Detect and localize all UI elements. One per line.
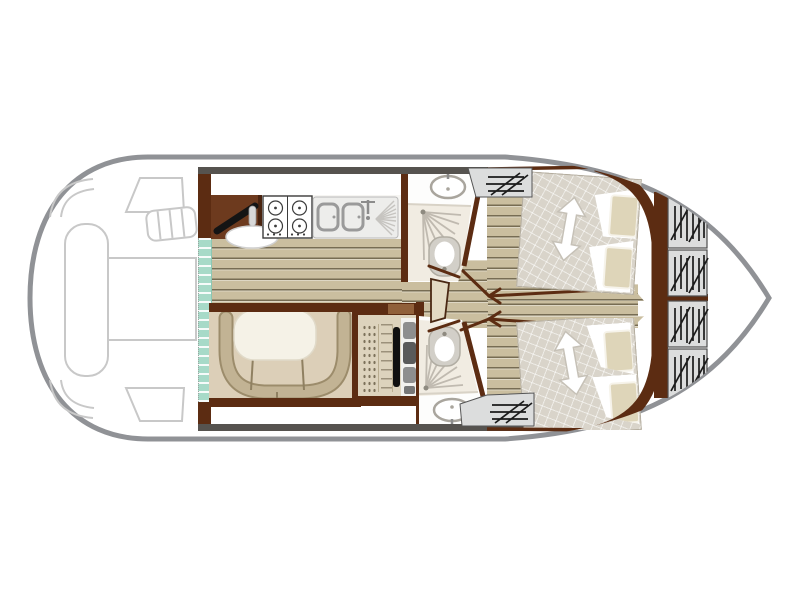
- galley-counter: [262, 195, 405, 239]
- hatch-glyph-icon: [671, 355, 708, 393]
- helm-seat[interactable]: [403, 342, 416, 364]
- galley-cabinet: [211, 195, 262, 239]
- pillow: [586, 238, 634, 293]
- corner-seat-bottom-icon: [50, 380, 94, 418]
- sink-faucet-icon: [361, 200, 375, 214]
- helm-wall-bottom: [356, 396, 420, 406]
- deck-seat-bottom-outline: [126, 388, 184, 421]
- locker-hatch[interactable]: [668, 250, 707, 296]
- dinette-wall-top: [209, 303, 360, 312]
- cabinet-handle: [249, 206, 256, 226]
- dinette-wall-bottom: [209, 398, 360, 407]
- helm-step-treads-2: [381, 324, 393, 392]
- pillow: [592, 374, 639, 427]
- deck-seat-top-outline: [126, 178, 184, 212]
- bathroom-bottom-wall-right: [464, 322, 483, 396]
- locker-hatch[interactable]: [668, 349, 707, 398]
- corner-seat-top-icon: [50, 179, 94, 217]
- hull-inner-line-top: [198, 167, 488, 174]
- toilet-icon: [429, 327, 460, 366]
- cutting-board-icon: [217, 206, 255, 231]
- bathroom-top-wall-right: [464, 170, 483, 266]
- helm-cabinet-light: [388, 304, 414, 314]
- shower-spray-icon: [426, 345, 463, 388]
- galley-wall-left: [198, 168, 211, 240]
- boarding-ladder-icon: [146, 206, 198, 241]
- washbasin-icon: [431, 170, 465, 198]
- sink-icon: [313, 197, 398, 238]
- pillow: [586, 322, 634, 377]
- hatch-glyph-icon: [671, 306, 708, 344]
- bow-lockers: [668, 197, 708, 398]
- helm-wall-right: [416, 302, 424, 428]
- shower-floor: [419, 320, 478, 396]
- instrument-panel: [403, 367, 416, 383]
- helm-step-treads: [362, 324, 379, 392]
- saloon-floor: [209, 238, 405, 308]
- deck-table-outline: [108, 258, 196, 340]
- helm-control-small: [404, 386, 415, 394]
- dinette-area: [209, 312, 354, 398]
- pillow: [592, 186, 639, 239]
- cabinet-edge: [258, 195, 262, 239]
- hatch-glyph-icon: [671, 255, 708, 293]
- gas-hob-icon: [263, 196, 312, 238]
- locker-hatch[interactable]: [668, 301, 707, 347]
- sun-lounger-outline: [65, 224, 108, 376]
- drainer-icon: [376, 201, 396, 235]
- shower-spray-icon: [423, 212, 461, 260]
- locker-hatch[interactable]: [668, 197, 707, 248]
- boat-floor-plan: [0, 0, 800, 599]
- hull-inner-line-bottom: [198, 424, 528, 431]
- hatch-glyph-icon: [671, 204, 708, 242]
- steering-wheel[interactable]: [393, 327, 400, 387]
- aft-deck-furniture-outlines: [50, 178, 197, 421]
- throttle-control[interactable]: [403, 322, 416, 339]
